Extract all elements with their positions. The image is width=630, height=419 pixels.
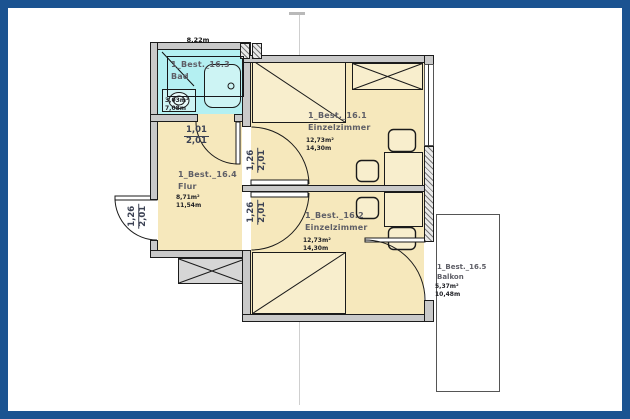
- wall-corridor-vertical-bottom: [242, 250, 251, 322]
- room-measure-einzelzimmer1: 12,73m² 14,30m: [306, 137, 334, 153]
- wardrobe-symbol: [353, 64, 423, 90]
- window-glazing-line: [428, 64, 429, 146]
- room-label-bad: 1_Best._16.3 Bad: [171, 59, 230, 83]
- room-id: 1_Best._16.1: [308, 110, 371, 122]
- door-width: 1,26: [247, 200, 258, 225]
- room-area: 3,03m²: [165, 97, 189, 105]
- room-measure-balkon: 5,37m² 10,48m: [435, 283, 460, 299]
- door-height: 2,01: [257, 148, 267, 173]
- door-height: 2,01: [257, 200, 267, 225]
- room-name: Einzelzimmer: [305, 222, 368, 234]
- room-id: 1_Best._16.3: [171, 59, 230, 71]
- wall-rooms-top: [242, 55, 434, 63]
- room-id: 1_Best._16.5: [437, 262, 486, 272]
- room-name: Einzelzimmer: [308, 122, 371, 134]
- room-label-balkon: 1_Best._16.5 Balkon: [437, 262, 486, 282]
- door-height: 2,01: [184, 137, 209, 147]
- wall-room-divider: [242, 185, 426, 192]
- chair-symbol: [389, 130, 416, 152]
- door-height: 2,01: [138, 204, 148, 229]
- wall-right-hatched: [424, 146, 434, 242]
- room-label-flur: 1_Best._16.4 Flur: [178, 169, 237, 193]
- wall-bath-left: [150, 42, 158, 122]
- room-area: 5,37m²: [435, 283, 460, 291]
- room-name: Flur: [178, 181, 237, 193]
- desk-symbol: [385, 193, 423, 227]
- room-area: 8,71m²: [176, 194, 201, 202]
- door-size-entry: 1,26 2,01: [120, 198, 156, 234]
- shaft-cross-lines: [179, 259, 245, 283]
- wall-rooms-bottom: [242, 314, 434, 322]
- wall-flur-bottom: [150, 250, 250, 258]
- room-id: 1_Best._16.2: [305, 210, 368, 222]
- room-area: 12,73m²: [306, 137, 334, 145]
- door-size-bad: 1,01 2,01: [184, 126, 209, 147]
- wall-chimney-block: [252, 43, 262, 59]
- desk-symbol: [385, 153, 423, 187]
- bed-symbol: [253, 253, 346, 314]
- room-measure-einzelzimmer2: 12,73m² 14,30m: [303, 237, 331, 253]
- room-perimeter: 10,48m: [435, 291, 460, 299]
- room-perimeter: 7,08m: [165, 105, 189, 113]
- dimension-top-width: 8,22m: [178, 36, 218, 44]
- window-right: [424, 64, 434, 146]
- room-perimeter: 14,30m: [306, 145, 334, 153]
- door-width: 1,26: [247, 148, 258, 173]
- room-label-einzelzimmer2: 1_Best._16.2 Einzelzimmer: [305, 210, 368, 234]
- wall-right-bottom: [424, 300, 434, 322]
- room-measure-bad: 3,03m² 7,08m: [165, 97, 189, 113]
- room-perimeter: 14,30m: [303, 245, 331, 253]
- room-id: 1_Best._16.4: [178, 169, 237, 181]
- floorplan-canvas: 1_Best._16.3 Bad 3,03m² 7,08m 1_Best._16…: [0, 0, 630, 419]
- door-size-room2: 1,26 2,01: [239, 194, 275, 230]
- room-area: 12,73m²: [303, 237, 331, 245]
- door-arc: [365, 238, 425, 300]
- room-measure-flur: 8,71m² 11,54m: [176, 194, 201, 210]
- room-name: Balkon: [437, 272, 486, 282]
- room-label-einzelzimmer1: 1_Best._16.1 Einzelzimmer: [308, 110, 371, 134]
- room-name: Bad: [171, 71, 230, 83]
- wall-flur-left: [150, 114, 158, 200]
- balcony-outline: [436, 214, 500, 392]
- door-width: 1,26: [128, 204, 139, 229]
- door-size-room1: 1,26 2,01: [239, 142, 275, 178]
- room-perimeter: 11,54m: [176, 202, 201, 210]
- chair-symbol: [357, 161, 379, 182]
- wall-bath-bottom-left: [150, 114, 198, 122]
